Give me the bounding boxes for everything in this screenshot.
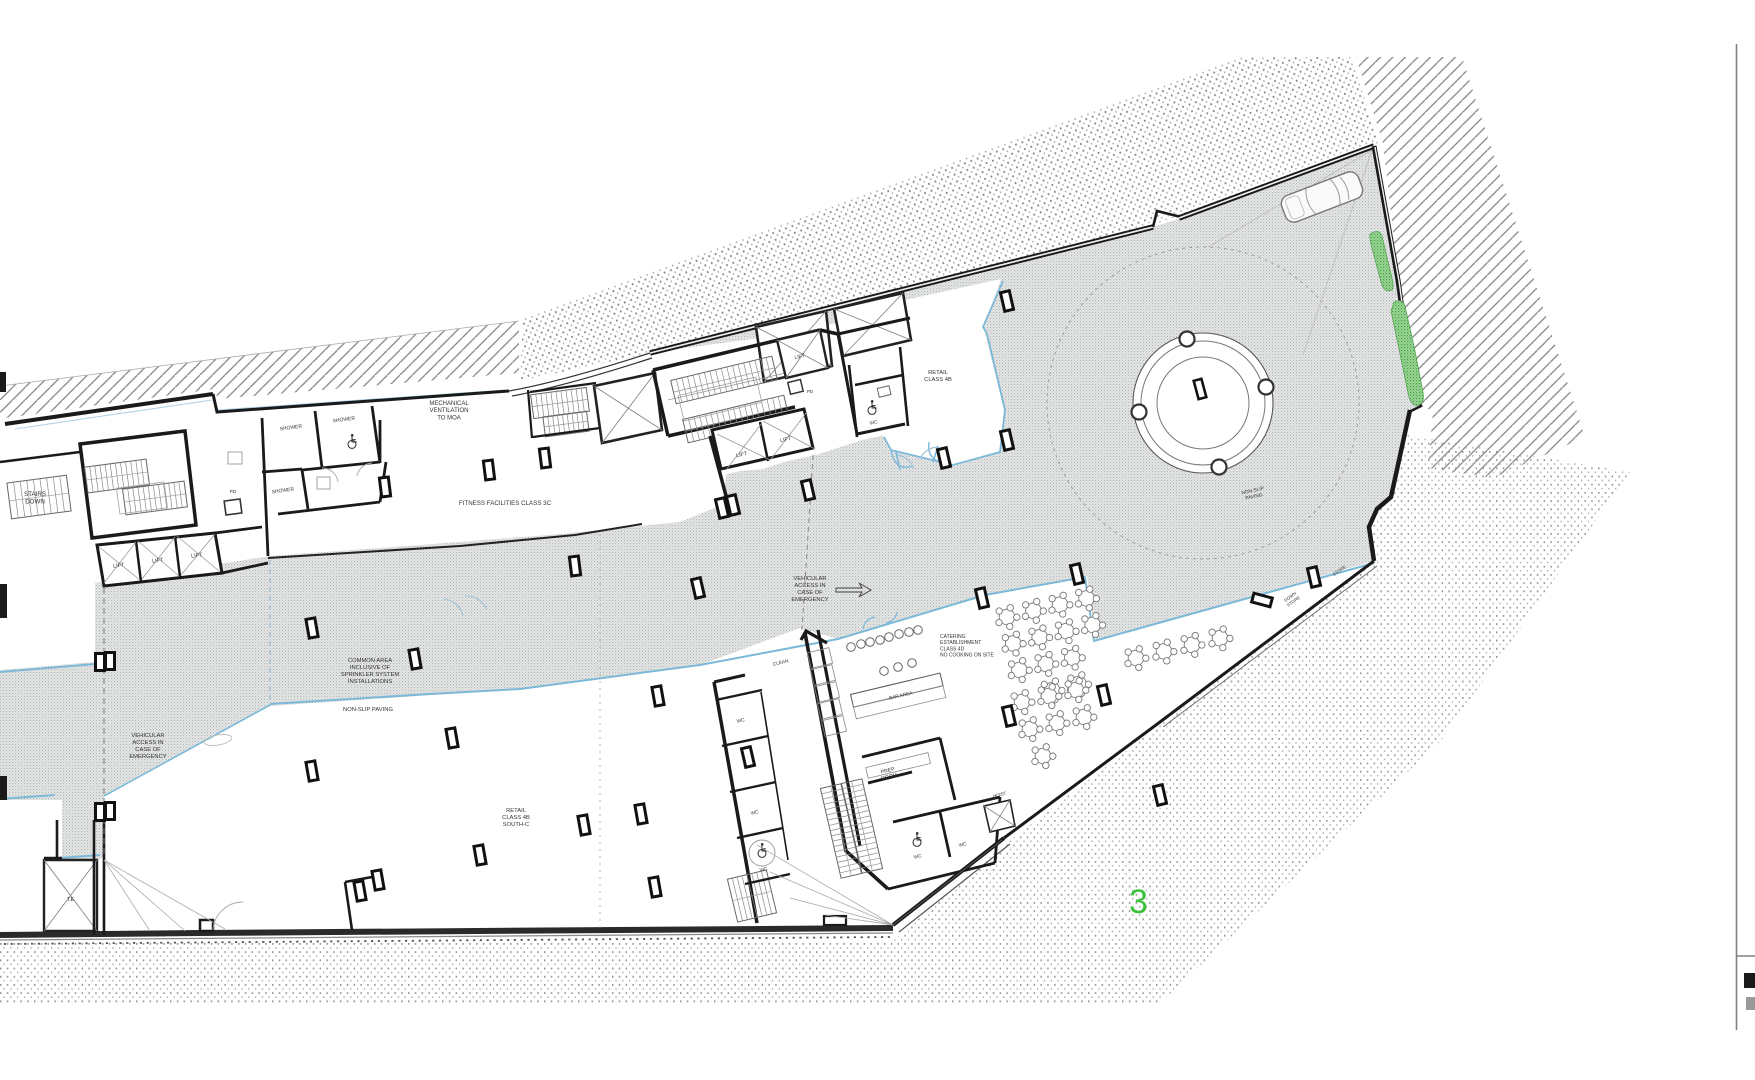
svg-text:VEHICULAR: VEHICULAR — [793, 576, 826, 582]
svg-text:TO MOA: TO MOA — [437, 415, 461, 421]
svg-text:INSTALLATIONS: INSTALLATIONS — [348, 679, 392, 685]
svg-text:SPRINKLER SYSTEM: SPRINKLER SYSTEM — [341, 672, 399, 678]
svg-text:CASE OF: CASE OF — [797, 590, 823, 596]
svg-text:CLASS 4B: CLASS 4B — [924, 377, 952, 383]
svg-text:CATERING: CATERING — [940, 634, 966, 640]
svg-text:CLASS 4D: CLASS 4D — [940, 646, 965, 652]
svg-text:DOWN: DOWN — [25, 498, 45, 505]
svg-text:RETAIL: RETAIL — [506, 808, 527, 814]
svg-text:CLASS 4B: CLASS 4B — [502, 815, 530, 821]
svg-text:ACCESS IN: ACCESS IN — [132, 740, 163, 746]
svg-text:NO COOKING ON SITE: NO COOKING ON SITE — [940, 653, 995, 659]
svg-text:ESTABLISHMENT: ESTABLISHMENT — [940, 640, 981, 646]
svg-text:MECHANICAL: MECHANICAL — [429, 401, 469, 407]
svg-text:VENTILATION: VENTILATION — [430, 408, 469, 414]
svg-text:EMERGENCY: EMERGENCY — [791, 597, 828, 603]
svg-text:STAIRS: STAIRS — [24, 491, 46, 498]
svg-text:3: 3 — [1129, 883, 1148, 921]
svg-text:VEHICULAR: VEHICULAR — [131, 733, 164, 739]
svg-text:PD: PD — [807, 389, 814, 394]
svg-text:ACCESS IN: ACCESS IN — [794, 583, 825, 589]
svg-text:COMMON AREA: COMMON AREA — [348, 658, 392, 664]
svg-text:INCLUSIVE OF: INCLUSIVE OF — [350, 665, 391, 671]
svg-text:RETAIL: RETAIL — [928, 370, 949, 376]
svg-text:CASE OF: CASE OF — [135, 747, 161, 753]
svg-text:EMERGENCY: EMERGENCY — [129, 754, 166, 760]
svg-text:FITNESS FACILITIES CLASS 3C: FITNESS FACILITIES CLASS 3C — [459, 500, 552, 507]
svg-text:NON-SLIP PAVING: NON-SLIP PAVING — [343, 707, 393, 713]
svg-text:PD: PD — [230, 489, 237, 495]
svg-text:SOUTH-C: SOUTH-C — [503, 822, 529, 828]
svg-text:T.E.: T.E. — [67, 897, 76, 903]
